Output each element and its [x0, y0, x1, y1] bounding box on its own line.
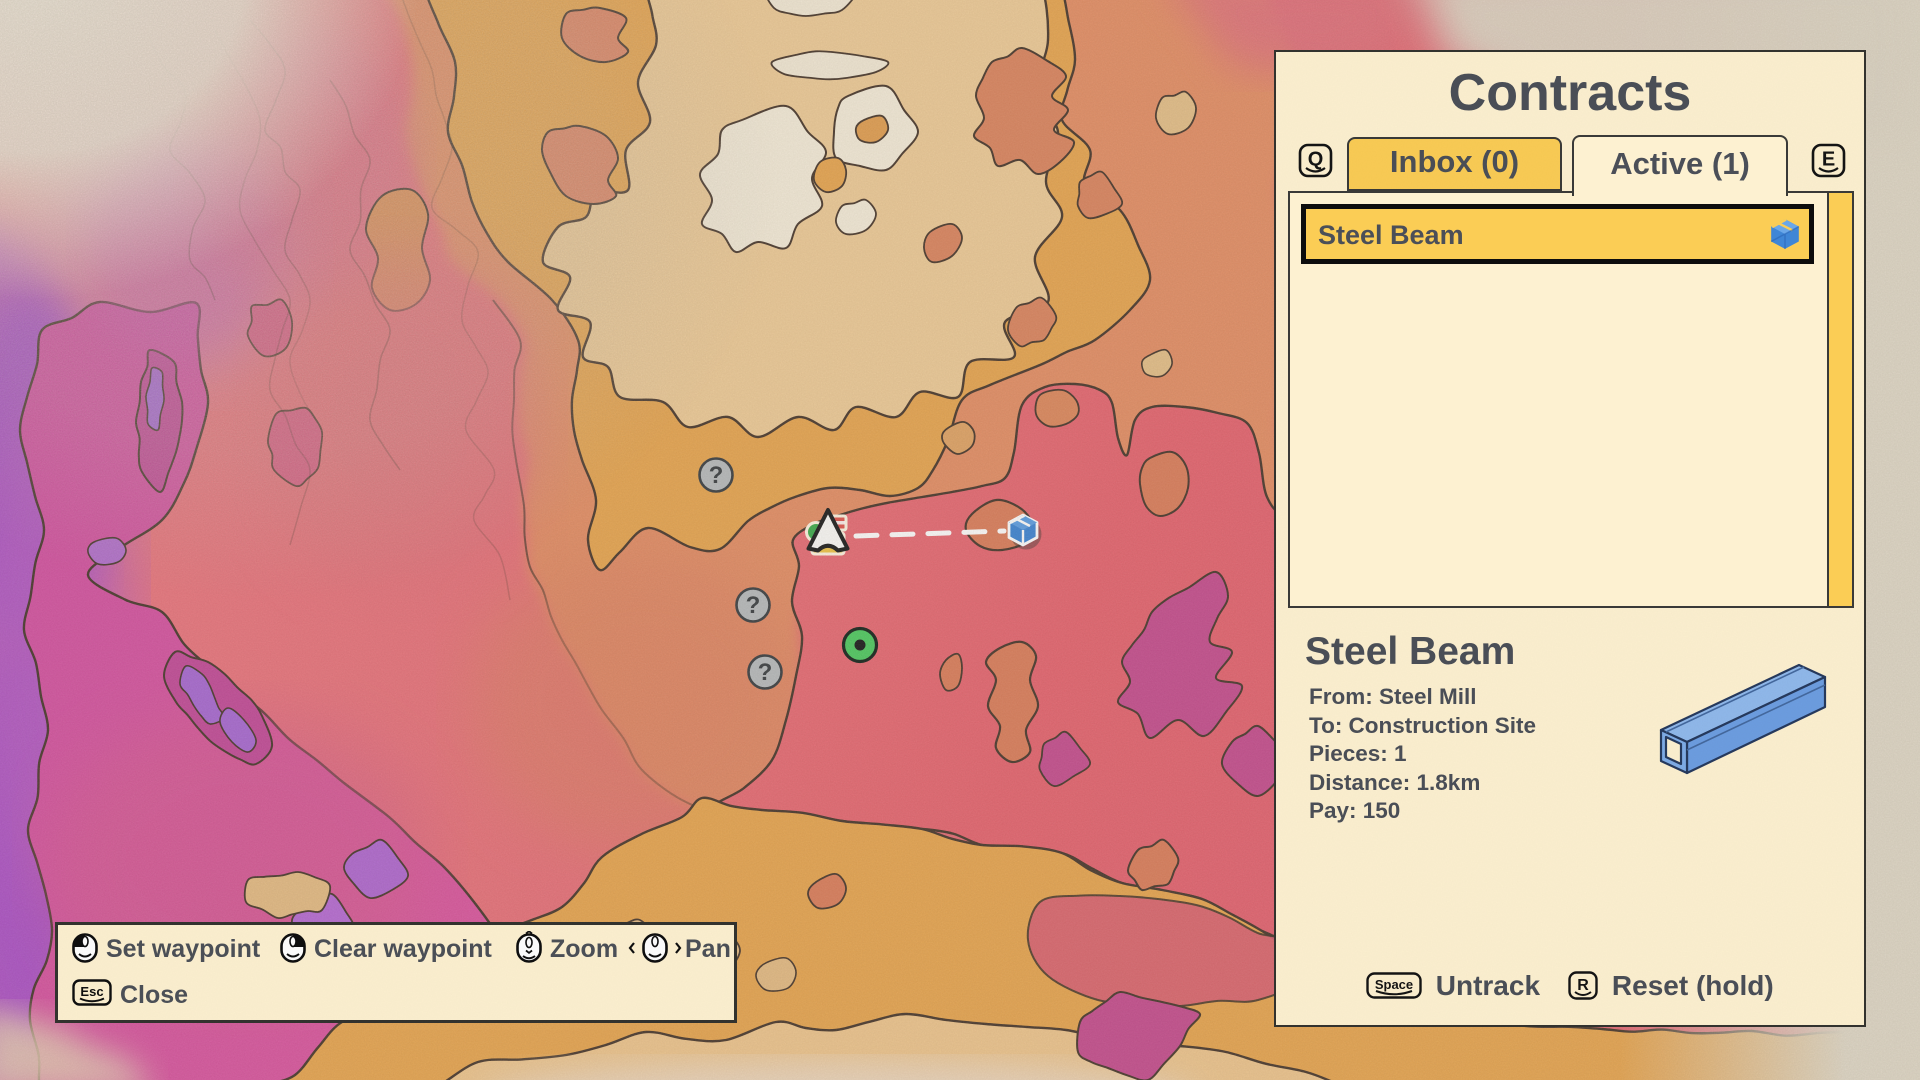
svg-text:Space: Space: [1375, 977, 1413, 992]
svg-text:Esc: Esc: [80, 984, 103, 999]
svg-text:E: E: [1822, 149, 1835, 171]
svg-text:R: R: [1578, 977, 1590, 994]
svg-text:Q: Q: [1308, 149, 1324, 171]
